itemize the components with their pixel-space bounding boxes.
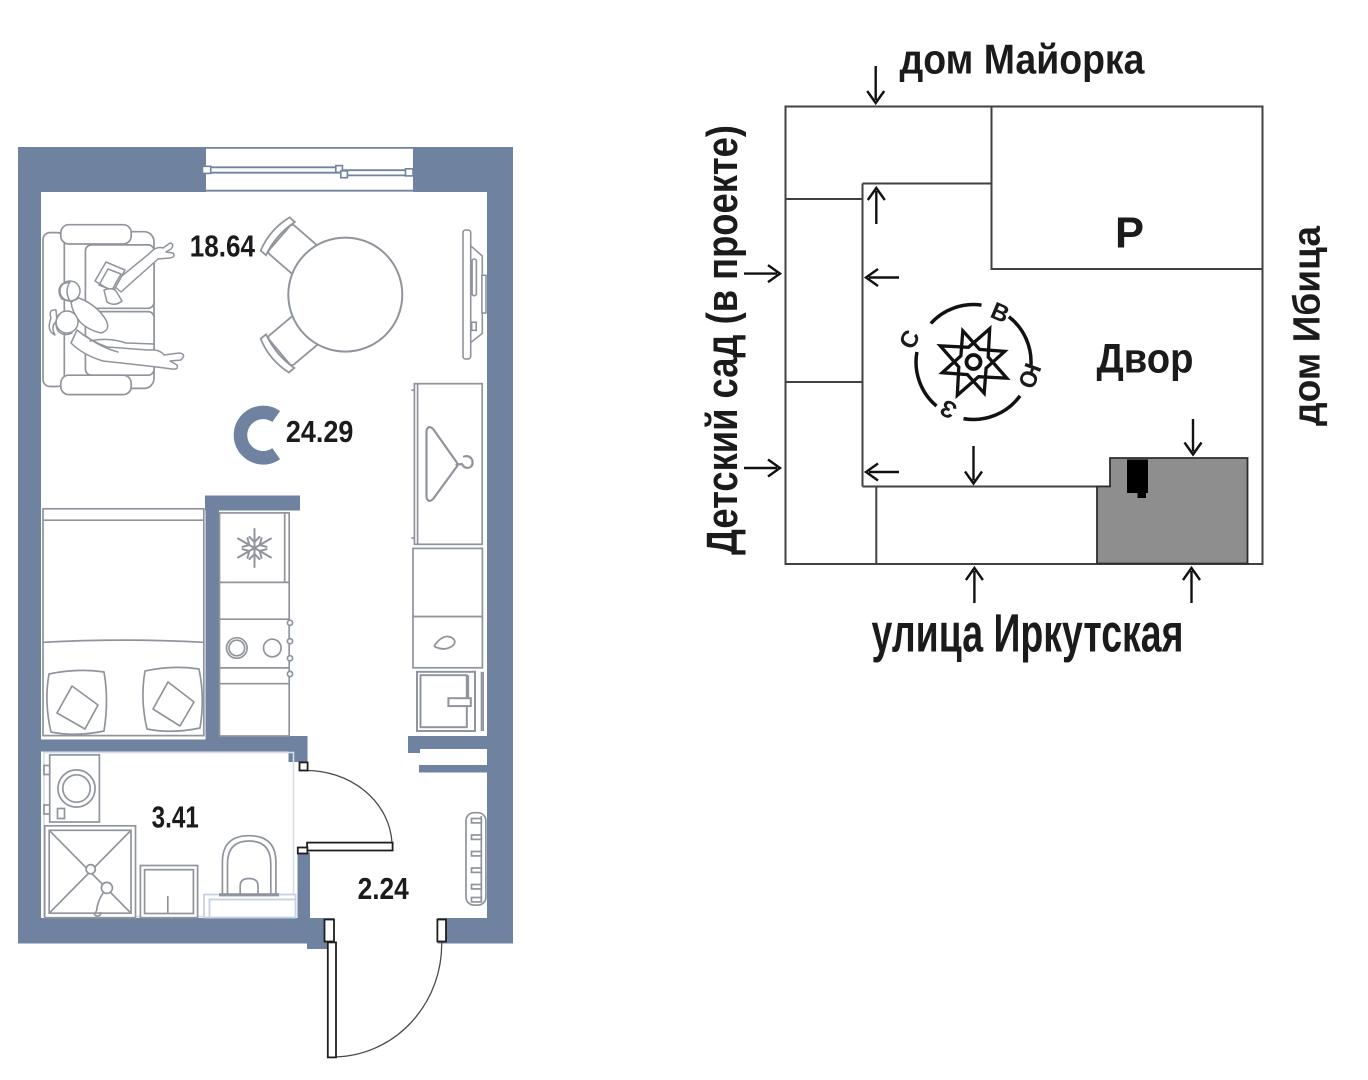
svg-text:дом Ибица: дом Ибица [1287,225,1329,426]
svg-text:18.64: 18.64 [190,229,255,263]
svg-text:24.29: 24.29 [286,415,354,449]
svg-text:Детский сад (в проекте): Детский сад (в проекте) [699,125,747,555]
svg-text:3.41: 3.41 [152,800,199,834]
svg-text:улица Иркутская: улица Иркутская [872,603,1184,663]
svg-text:Двор: Двор [1097,334,1194,381]
svg-text:Р: Р [1115,210,1144,258]
svg-text:дом Майорка: дом Майорка [900,36,1146,83]
svg-text:2.24: 2.24 [358,872,409,906]
